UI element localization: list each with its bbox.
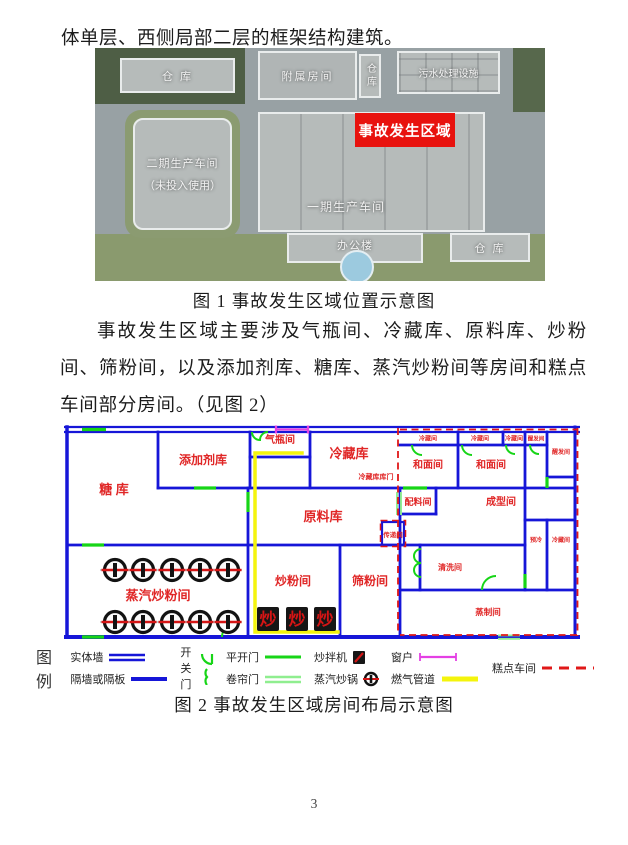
fountain: [340, 250, 374, 281]
double-swing-door-icon: [199, 668, 215, 685]
label-warehouse-bottom-right: 仓 库: [474, 240, 505, 256]
room-proofing-right: 醒发间: [552, 448, 570, 456]
room-cold-2: 冷藏间: [471, 435, 489, 443]
legend-window: 窗户: [391, 649, 413, 665]
room-sugar-store: 糖 库: [99, 482, 129, 497]
body-text-top: 体单层、西侧局部二层的框架结构建筑。: [61, 24, 403, 50]
figure1-aerial-image: 仓 库 附属房间 仓库 污水处理设施 二期生产车间 （未投入使用） 一期生产车间…: [95, 48, 545, 281]
walls: [64, 427, 580, 637]
room-cold-3: 冷藏间: [505, 435, 523, 443]
page-number: 3: [0, 796, 628, 812]
room-kneading-2: 和面间: [475, 458, 506, 471]
label-phase2-line2: （未投入使用）: [144, 177, 221, 193]
building-warehouse-top-left: 仓 库: [120, 58, 235, 93]
figure1-caption: 图 1 事故发生区域位置示意图: [0, 288, 628, 313]
building-annex-rooms: 附属房间: [258, 51, 357, 100]
building-phase2-workshop: 二期生产车间 （未投入使用）: [133, 118, 232, 230]
gas-pipeline: [255, 453, 338, 632]
svg-text:炒: 炒: [260, 610, 277, 629]
partition-wall-icon: [129, 675, 169, 683]
room-frying: 炒粉间: [275, 573, 311, 588]
label-annex-rooms: 附属房间: [282, 68, 334, 84]
legend-steam-pot: 蒸汽炒锅: [314, 671, 358, 687]
figure2-caption: 图 2 事故发生区域房间布局示意图: [0, 692, 628, 717]
legend-pastry-workshop: 糕点车间: [492, 660, 536, 676]
figure2-legend: 图例 实体墙 隔墙或隔板 开关门 平开门 卷帘门 炒拌机 蒸汽炒锅: [36, 644, 596, 692]
building-warehouse-bottom-right: 仓 库: [450, 233, 530, 262]
room-washing: 清洗间: [438, 562, 462, 572]
gas-pipeline-icon: [439, 675, 481, 683]
greenery-right: [513, 48, 545, 112]
room-cold-storage: 冷藏库: [329, 446, 368, 461]
hinged-door-icon: [263, 653, 303, 661]
steam-pot-icon: [362, 671, 380, 687]
label-sewage-treatment: 污水处理设施: [419, 65, 479, 80]
label-phase2-line1: 二期生产车间: [147, 155, 219, 171]
room-batching: 配料间: [404, 496, 431, 507]
legend-title: 图例: [36, 644, 57, 692]
legend-gas-pipeline: 燃气管道: [391, 671, 435, 687]
room-steam-frying: 蒸汽炒粉间: [125, 588, 190, 603]
document-page: 体单层、西侧局部二层的框架结构建筑。 仓 库 附属房间 仓库 污水处理设施 二期…: [0, 0, 628, 845]
room-forming: 成型间: [486, 495, 516, 508]
roller-door-icon: [263, 674, 303, 684]
figure2-floorplan: 炒 炒 炒 糖 库 添加剂库 气瓶间 冷藏库 原料库 蒸汽炒粉间 炒粉间 筛粉间…: [64, 422, 580, 642]
room-gas-cylinder: 气瓶间: [264, 433, 295, 446]
room-kneading-1: 和面间: [412, 458, 443, 471]
legend-partition-wall: 隔墙或隔板: [70, 671, 125, 687]
mixer-icon: [351, 649, 367, 665]
accident-area-badge: 事故发生区域: [355, 113, 455, 147]
room-pass-through: 传递间: [382, 530, 403, 539]
window-icon: [417, 652, 459, 662]
legend-hinged-door: 平开门: [226, 649, 259, 665]
room-cold-1: 冷藏间: [419, 435, 437, 443]
label-warehouse-top-left: 仓 库: [162, 68, 193, 84]
solid-wall-icon: [107, 652, 147, 662]
swing-door-icon: [199, 652, 215, 667]
label-phase1-workshop: 一期生产车间: [307, 198, 385, 215]
room-sieving: 筛粉间: [352, 573, 388, 588]
room-precooling: 预冷: [530, 536, 542, 544]
room-steaming: 蒸制间: [475, 607, 501, 617]
room-raw-material: 原料库: [303, 509, 342, 524]
room-additive-store: 添加剂库: [179, 452, 227, 467]
room-proofing-top: 醒发间: [528, 435, 545, 443]
pastry-boundary-icon: [540, 664, 596, 672]
legend-roller-door: 卷帘门: [226, 671, 259, 687]
room-cold-lower: 冷藏间: [552, 536, 570, 544]
label-warehouse-mid: 仓库: [363, 63, 378, 89]
building-warehouse-mid: 仓库: [359, 54, 381, 98]
legend-solid-wall: 实体墙: [70, 649, 103, 665]
svg-text:炒: 炒: [317, 610, 334, 629]
legend-swing-door: 开关门: [180, 644, 196, 692]
svg-text:炒: 炒: [289, 610, 306, 629]
cold-storage-gate: 冷藏库库门: [359, 472, 394, 481]
mixer-icons: 炒 炒 炒: [257, 607, 336, 631]
body-paragraph: 事故发生区域主要涉及气瓶间、冷藏库、原料库、炒粉间、筛粉间，以及添加剂库、糖库、…: [60, 314, 587, 425]
legend-mixer: 炒拌机: [314, 649, 347, 665]
building-sewage-treatment: 污水处理设施: [397, 51, 500, 94]
